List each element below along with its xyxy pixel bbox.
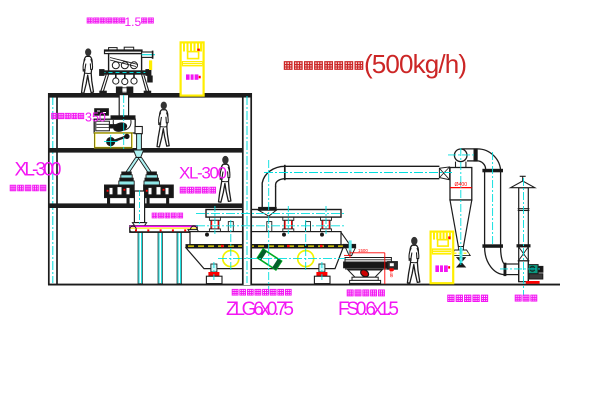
svg-text:Ø400: Ø400 bbox=[455, 182, 468, 188]
svg-text:FS0.6x1.5: FS0.6x1.5 bbox=[338, 299, 399, 320]
svg-text:540: 540 bbox=[389, 270, 394, 278]
svg-text:1500: 1500 bbox=[358, 248, 368, 253]
svg-text:(500kg/h): (500kg/h) bbox=[364, 49, 467, 79]
svg-text:350: 350 bbox=[85, 111, 106, 125]
svg-text:XL-300: XL-300 bbox=[179, 164, 227, 183]
svg-text:1.5: 1.5 bbox=[125, 15, 142, 29]
svg-text:XL-300: XL-300 bbox=[15, 160, 62, 181]
svg-text:ZLG6x0.75: ZLG6x0.75 bbox=[226, 299, 294, 320]
